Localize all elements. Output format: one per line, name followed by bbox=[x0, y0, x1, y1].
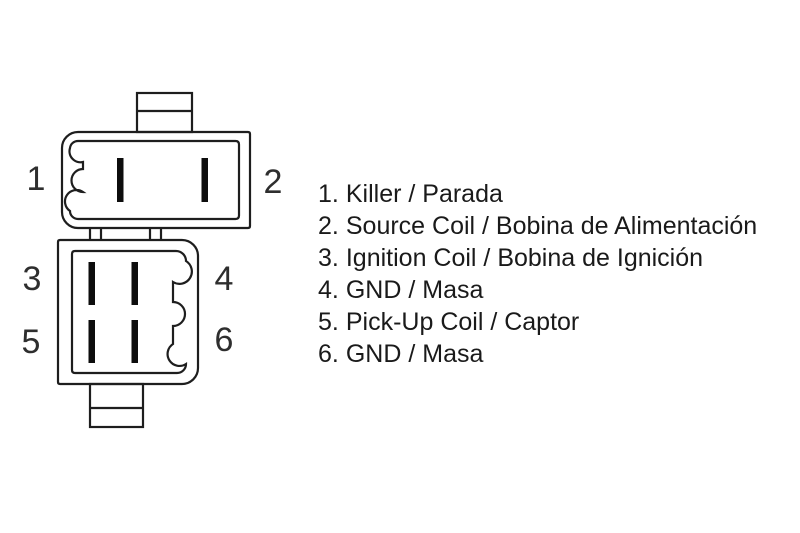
legend-item-number: 6. bbox=[318, 338, 339, 370]
legend-item: 6.GND / Masa bbox=[318, 338, 757, 370]
connector-pinout-page: 1 2 3 4 5 6 1.Killer / Parada 2.Source C… bbox=[0, 0, 800, 533]
top-latch-tab bbox=[137, 93, 192, 132]
pin-1-contact bbox=[117, 158, 124, 202]
pin-label-6: 6 bbox=[215, 323, 234, 357]
legend-item-label: Pick-Up Coil / Captor bbox=[346, 308, 579, 336]
legend-item-label: Killer / Parada bbox=[346, 180, 503, 208]
pin-6-contact bbox=[132, 320, 139, 363]
pin-label-5: 5 bbox=[22, 325, 41, 359]
legend-item-label: GND / Masa bbox=[346, 276, 484, 304]
legend-item-label: Source Coil / Bobina de Alimentación bbox=[346, 212, 757, 240]
connector-pins bbox=[89, 158, 209, 363]
pinout-legend: 1.Killer / Parada 2.Source Coil / Bobina… bbox=[318, 178, 757, 370]
bottom-cable-tab bbox=[90, 384, 143, 427]
legend-item: 3.Ignition Coil / Bobina de Ignición bbox=[318, 242, 757, 274]
legend-item-number: 5. bbox=[318, 306, 339, 338]
legend-item: 4.GND / Masa bbox=[318, 274, 757, 306]
pin-label-2: 2 bbox=[264, 165, 283, 199]
top-connector-cavity-outline bbox=[65, 141, 239, 219]
legend-item-number: 3. bbox=[318, 242, 339, 274]
pin-2-contact bbox=[202, 158, 209, 202]
pin-label-3: 3 bbox=[23, 262, 42, 296]
pin-label-1: 1 bbox=[27, 162, 46, 196]
bottom-connector-outer-outline bbox=[58, 240, 198, 384]
legend-item-number: 2. bbox=[318, 210, 339, 242]
pin-4-contact bbox=[132, 262, 139, 305]
pin-5-contact bbox=[89, 320, 96, 363]
pin-3-contact bbox=[89, 262, 96, 305]
legend-item-label: GND / Masa bbox=[346, 340, 484, 368]
legend-item-label: Ignition Coil / Bobina de Ignición bbox=[346, 244, 703, 272]
legend-item-number: 1. bbox=[318, 178, 339, 210]
legend-item: 2.Source Coil / Bobina de Alimentación bbox=[318, 210, 757, 242]
pin-label-4: 4 bbox=[215, 262, 234, 296]
legend-item: 1.Killer / Parada bbox=[318, 178, 757, 210]
legend-item-number: 4. bbox=[318, 274, 339, 306]
legend-item: 5.Pick-Up Coil / Captor bbox=[318, 306, 757, 338]
top-connector-outer-outline bbox=[62, 132, 250, 228]
